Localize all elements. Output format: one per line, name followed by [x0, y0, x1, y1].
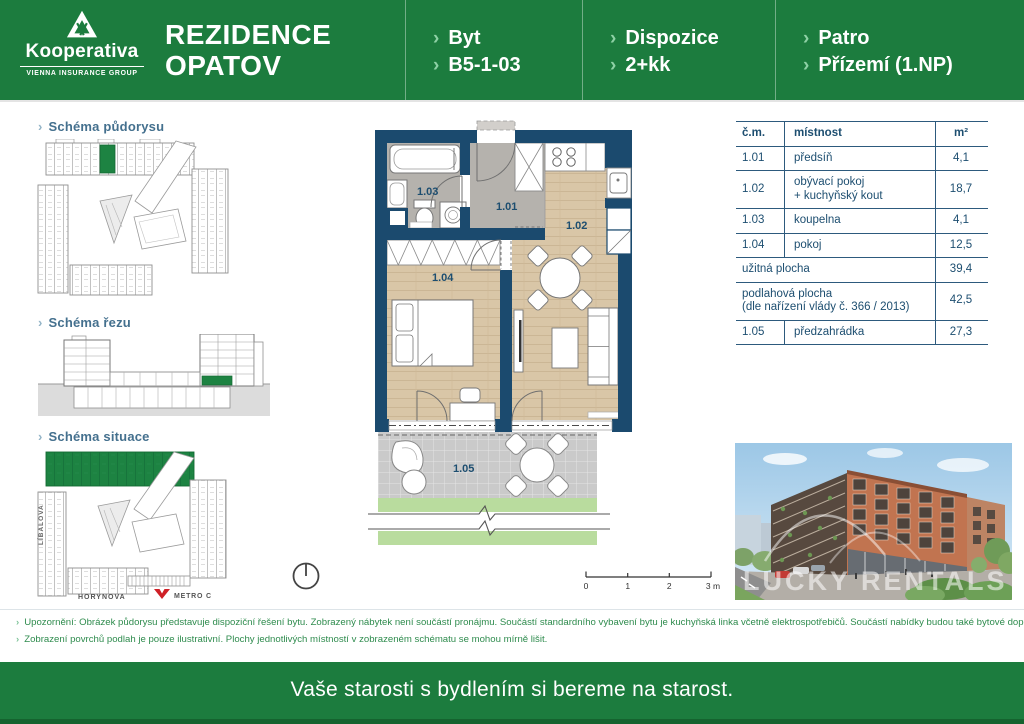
room-label-bathroom: 1.03: [417, 186, 438, 198]
section-label-situation-schema: ›Schéma situace: [38, 429, 150, 444]
section-label-floorplan-schema: ›Schéma půdorysu: [38, 119, 164, 134]
section-label-section-schema: ›Schéma řezu: [38, 315, 131, 330]
scale-bar: 0 1 2 3 m: [584, 572, 720, 592]
section-cut-schematic: [38, 334, 270, 420]
header-bar: Kooperativa VIENNA INSURANCE GROUP REZID…: [0, 0, 1024, 100]
desk-chair: [460, 388, 480, 402]
cell-room-name: pokoj: [785, 233, 936, 258]
kooperativa-logo: Kooperativa VIENNA INSURANCE GROUP: [20, 9, 144, 77]
chevron-right-icon: ›: [16, 634, 19, 645]
segment-floor-value: Přízemí (1.NP): [818, 52, 952, 78]
footer-edge: [0, 719, 1024, 724]
table-row: 1.05 předzahrádka 27,3: [736, 320, 988, 345]
brand-name: Kooperativa: [20, 41, 144, 63]
header-divider: [775, 0, 776, 100]
cell-area: 4,1: [936, 146, 989, 171]
watermark-text: LUCKY RENTALS: [743, 566, 1008, 596]
stove-burner: [567, 158, 575, 166]
cell-area: 27,3: [936, 320, 989, 345]
cell-room-number: 1.04: [736, 233, 785, 258]
header-room-number: č.m.: [736, 122, 785, 147]
disclaimer-line2: Zobrazení povrchů podlah je pouze ilustr…: [24, 634, 547, 645]
segment-floor: ›Patro ›Přízemí (1.NP): [803, 25, 953, 79]
wall-niche: [607, 208, 631, 230]
cell-total-label: podlahová plocha (dle nařízení vlády č. …: [736, 282, 936, 320]
header-room-name: místnost: [785, 122, 936, 147]
stove-burner: [553, 148, 561, 156]
kooperativa-triangle-icon: [64, 9, 100, 40]
chevron-right-icon: ›: [433, 26, 439, 52]
scale-tick-1: 1: [625, 581, 630, 591]
header-shadow-line: [0, 100, 1024, 102]
cell-room-name: předzahrádka: [785, 320, 936, 345]
cell-total-label: užitná plocha: [736, 258, 936, 283]
footer-slogan: Vaše starosti s bydlením si bereme na st…: [0, 678, 1024, 702]
scale-tick-0: 0: [584, 581, 589, 591]
cell-room-number: 1.01: [736, 146, 785, 171]
metro-label: METRO C: [174, 593, 212, 600]
project-title-line2: OPATOV: [165, 50, 331, 81]
table-row: 1.03 koupelna 4,1: [736, 209, 988, 234]
cell-room-number: 1.03: [736, 209, 785, 234]
street-label-bottom: HORYNOVA: [78, 594, 126, 601]
chevron-right-icon: ›: [803, 53, 809, 79]
room-label-hall: 1.01: [496, 201, 517, 213]
header-area: m²: [936, 122, 989, 147]
segment-unit-value: B5-1-03: [448, 52, 520, 78]
chevron-right-icon: ›: [38, 119, 43, 134]
table-row: 1.02 obývací pokoj + kuchyňský kout 18,7: [736, 171, 988, 209]
table-row: 1.01 předsíň 4,1: [736, 146, 988, 171]
cell-room-name: obývací pokoj + kuchyňský kout: [785, 171, 936, 209]
segment-layout: ›Dispozice ›2+kk: [610, 25, 719, 79]
metro-logo-icon: [154, 589, 170, 599]
room-label-terrace: 1.05: [453, 463, 474, 475]
kitchen-counter: [545, 143, 605, 171]
cell-room-name: koupelna: [785, 209, 936, 234]
disclaimer-line1: Upozornění: Obrázek půdorysu představuje…: [24, 617, 1024, 628]
desk: [450, 403, 495, 421]
pillow: [396, 304, 413, 331]
stove-burner: [553, 158, 561, 166]
scale-tick-3: 3 m: [706, 581, 720, 591]
chevron-right-icon: ›: [610, 26, 616, 52]
sink: [610, 173, 627, 193]
floor-plan: 1.03 1.01 1.02 1.04 1.05 0 1 2 3 m: [290, 120, 720, 600]
chevron-right-icon: ›: [16, 617, 19, 628]
project-title: REZIDENCE OPATOV: [165, 19, 331, 81]
disclaimer: ›Upozornění: Obrázek půdorysu představuj…: [16, 615, 1018, 648]
cell-room-name: předsíň: [785, 146, 936, 171]
table-total-row: podlahová plocha (dle nařízení vlády č. …: [736, 282, 988, 320]
scale-tick-2: 2: [667, 581, 672, 591]
header-divider: [582, 0, 583, 100]
project-title-line1: REZIDENCE: [165, 19, 331, 50]
tv: [519, 320, 522, 362]
table-total-row: užitná plocha 39,4: [736, 258, 988, 283]
table-row: 1.04 pokoj 12,5: [736, 233, 988, 258]
footer-bar: Vaše starosti s bydlením si bereme na st…: [0, 662, 1024, 724]
brand-group: VIENNA INSURANCE GROUP: [20, 66, 144, 77]
dining-table: [540, 258, 580, 298]
segment-layout-label: Dispozice: [625, 25, 718, 51]
garden-pouf: [402, 470, 426, 494]
cell-room-number: 1.05: [736, 320, 785, 345]
coffee-table: [552, 328, 578, 368]
bath-step: [410, 222, 432, 228]
highlighted-unit: [202, 376, 232, 385]
room-label-bedroom: 1.04: [432, 272, 454, 284]
highlighted-unit: [100, 145, 115, 173]
chevron-right-icon: ›: [610, 53, 616, 79]
building-render-photo: LUCKY RENTALS: [735, 443, 1012, 600]
cell-area: 4,1: [936, 209, 989, 234]
shaft: [390, 211, 405, 225]
cell-total-area: 39,4: [936, 258, 989, 283]
tv-stand: [514, 310, 523, 372]
cell-area: 18,7: [936, 171, 989, 209]
cell-total-area: 42,5: [936, 282, 989, 320]
lounge-chair: [392, 441, 423, 473]
table-header-row: č.m. místnost m²: [736, 122, 988, 147]
rug: [588, 412, 620, 418]
pillow: [396, 335, 413, 362]
room-label-living: 1.02: [566, 220, 587, 232]
chevron-right-icon: ›: [803, 26, 809, 52]
divider-line: [0, 609, 1024, 610]
stove-burner: [567, 148, 575, 156]
terrace-table: [520, 448, 554, 482]
break-band: [368, 512, 610, 531]
situation-schematic: LÍBALOVA HORYNOVA METRO C: [36, 448, 246, 603]
chevron-right-icon: ›: [38, 429, 43, 444]
apartment-flyer-page: Kooperativa VIENNA INSURANCE GROUP REZID…: [0, 0, 1024, 724]
segment-floor-label: Patro: [818, 25, 869, 51]
cell-area: 12,5: [936, 233, 989, 258]
chevron-right-icon: ›: [433, 53, 439, 79]
site-floorplan-schematic: [36, 139, 246, 301]
entrance-niche: [477, 121, 515, 130]
room-area-table: č.m. místnost m² 1.01 předsíň 4,1 1.02 o…: [736, 121, 988, 345]
segment-unit-label: Byt: [448, 25, 480, 51]
street-label-left: LÍBALOVA: [36, 504, 45, 545]
chevron-right-icon: ›: [38, 315, 43, 330]
segment-layout-value: 2+kk: [625, 52, 670, 78]
segment-unit: ›Byt ›B5-1-03: [433, 25, 521, 79]
cell-room-number: 1.02: [736, 171, 785, 209]
header-divider: [405, 0, 406, 100]
